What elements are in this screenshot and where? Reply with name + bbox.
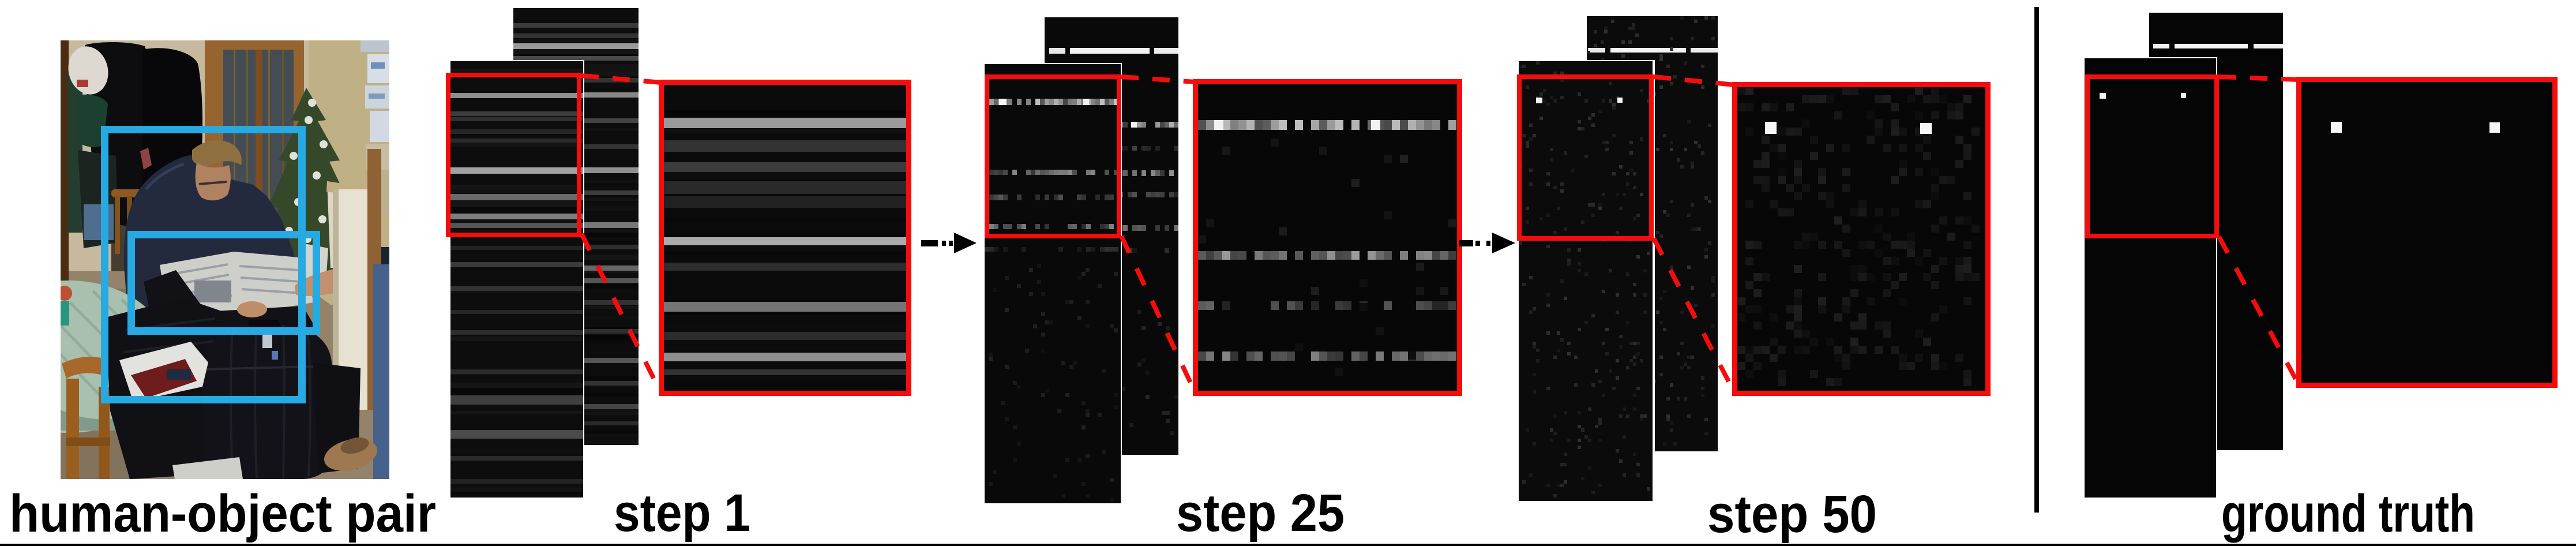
svg-text:ground truth: ground truth xyxy=(2221,484,2475,543)
svg-text:human-object pair: human-object pair xyxy=(9,484,436,543)
svg-text:step 1: step 1 xyxy=(614,484,750,543)
svg-text:step 50: step 50 xyxy=(1707,485,1877,544)
svg-text:step 25: step 25 xyxy=(1176,484,1345,543)
